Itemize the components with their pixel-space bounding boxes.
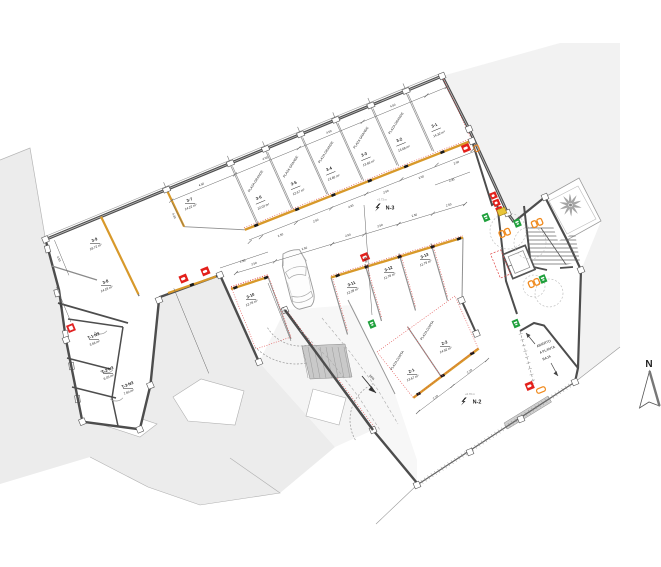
svg-text:N-2: N-2 bbox=[473, 400, 482, 406]
svg-text:+2.73 m: +2.73 m bbox=[377, 198, 388, 202]
svg-text:N: N bbox=[645, 359, 652, 370]
svg-text:+0.70 m: +0.70 m bbox=[465, 392, 476, 396]
svg-text:N-3: N-3 bbox=[386, 206, 395, 212]
